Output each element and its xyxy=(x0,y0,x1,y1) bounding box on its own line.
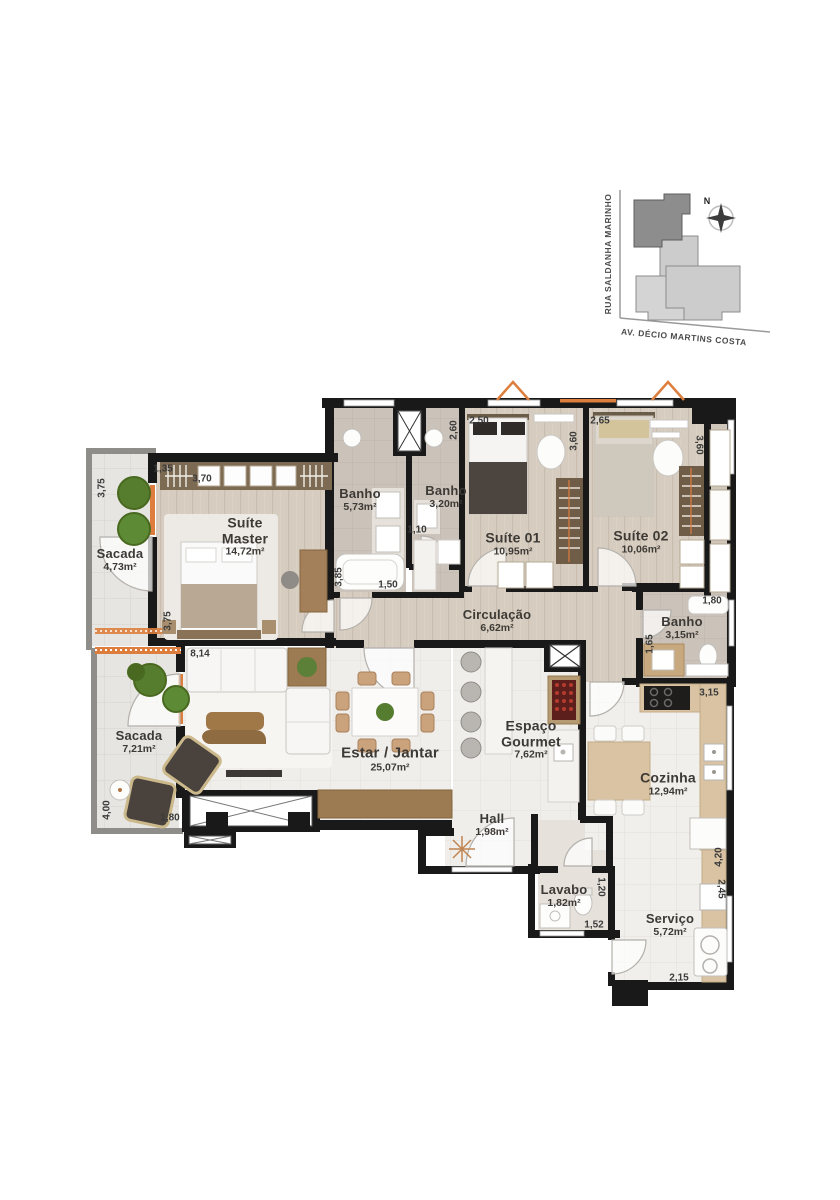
dim-label: 8,14 xyxy=(190,649,209,660)
room-label-banho-social: Banho 3,20m² xyxy=(425,484,466,510)
room-label-circulacao: Circulação 6,62m² xyxy=(463,608,531,634)
room-label-banho-suite-02: Banho 3,15m² xyxy=(661,615,702,641)
dim-label: 3,85 xyxy=(334,567,345,586)
elevator-shaft xyxy=(544,640,586,672)
dim-label: 2,65 xyxy=(590,416,609,427)
dim-label: 1,35 xyxy=(153,464,172,475)
dim-label: 3,60 xyxy=(569,431,580,450)
dim-label: 3,60 xyxy=(694,435,705,454)
floorplan-page: RUA SALDANHA MARINHO AV. DÉCIO MARTINS C… xyxy=(0,0,840,1200)
site-buildings xyxy=(634,194,740,320)
dim-label: 2,15 xyxy=(669,973,688,984)
dim-label: 2,50 xyxy=(469,416,488,427)
street-label-left: RUA SALDANHA MARINHO xyxy=(603,194,613,315)
dim-label: 3,15 xyxy=(699,688,718,699)
site-map xyxy=(620,190,770,332)
compass-north-label: N xyxy=(704,196,711,206)
site-unit-highlight xyxy=(634,194,690,247)
dim-label: 1,10 xyxy=(407,525,426,536)
room-label-sacada-top: Sacada 4,73m² xyxy=(97,547,144,573)
duct-shaft xyxy=(393,406,426,456)
dim-label: 4,20 xyxy=(714,847,725,866)
dim-label: 2,60 xyxy=(449,420,460,439)
dim-label: 1,80 xyxy=(160,813,179,824)
room-label-lavabo: Lavabo 1,82m² xyxy=(541,883,588,909)
dim-label: 3,75 xyxy=(163,611,174,630)
room-label-servico: Serviço 5,72m² xyxy=(646,912,694,938)
dim-label: 1,65 xyxy=(645,634,656,653)
room-label-suite-01: Suíte 01 10,95m² xyxy=(485,530,540,557)
dim-label: 1,80 xyxy=(702,596,721,607)
room-label-hall: Hall 1,98m² xyxy=(475,812,508,838)
room-label-estar-jantar: Estar / Jantar 25,07m² xyxy=(341,746,439,775)
room-label-cozinha: Cozinha 12,94m² xyxy=(640,770,696,797)
room-label-espaco-gourmet: Espaço Gourmet 7,62m² xyxy=(501,718,561,761)
dim-label: 3,75 xyxy=(97,478,108,497)
dim-label: 1,50 xyxy=(378,580,397,591)
dim-label: 3,70 xyxy=(192,474,211,485)
room-label-sacada-estar: Sacada 7,21m² xyxy=(116,729,163,755)
dim-label: 1,52 xyxy=(584,920,603,931)
dim-label: 1,20 xyxy=(596,877,607,896)
dim-label: 2,45 xyxy=(716,879,727,898)
room-label-banho-master: Banho 5,73m² xyxy=(339,487,380,513)
compass-icon xyxy=(706,203,736,233)
dim-label: 4,00 xyxy=(102,800,113,819)
stair-shaft xyxy=(182,790,320,848)
room-label-suite-02: Suíte 02 10,06m² xyxy=(613,528,668,555)
room-label-suite-master: Suíte Master 14,72m² xyxy=(222,515,268,558)
